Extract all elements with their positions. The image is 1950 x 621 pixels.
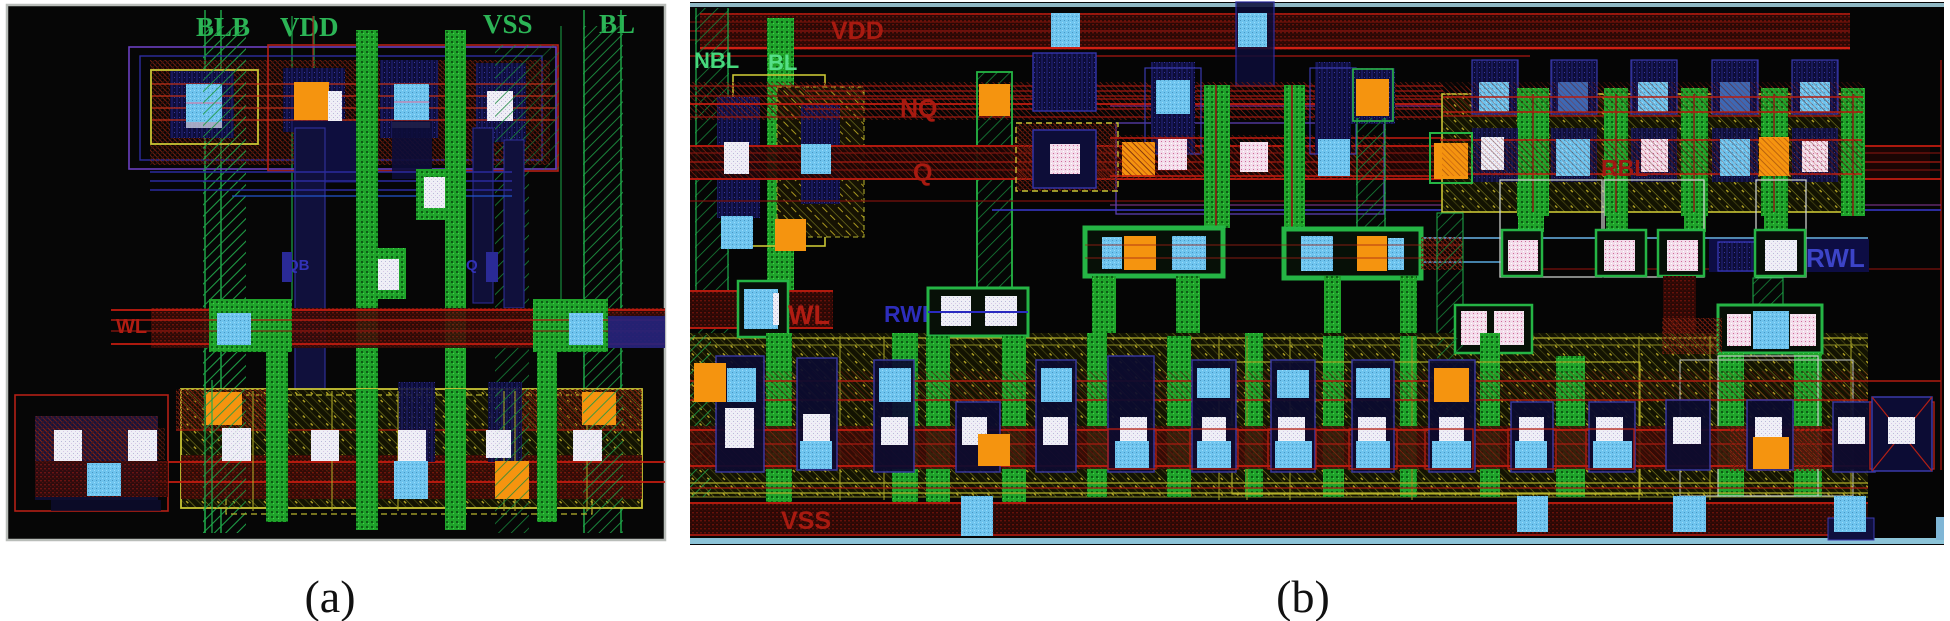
svg-text:VDD: VDD xyxy=(280,12,339,42)
svg-text:WL: WL xyxy=(788,300,830,330)
svg-text:VSS: VSS xyxy=(781,507,831,535)
svg-text:VSS: VSS xyxy=(483,9,533,39)
svg-text:WL: WL xyxy=(116,316,147,338)
svg-text:RBL: RBL xyxy=(1601,155,1648,181)
svg-text:(b): (b) xyxy=(1276,571,1330,621)
svg-text:Q: Q xyxy=(466,257,478,274)
svg-text:NBL: NBL xyxy=(694,48,739,73)
svg-text:Q: Q xyxy=(913,159,932,187)
svg-text:NQ: NQ xyxy=(900,95,938,123)
svg-text:RWL: RWL xyxy=(1806,243,1865,273)
svg-text:(a): (a) xyxy=(304,571,355,621)
svg-text:VDD: VDD xyxy=(831,17,884,45)
svg-text:BL: BL xyxy=(768,50,797,75)
